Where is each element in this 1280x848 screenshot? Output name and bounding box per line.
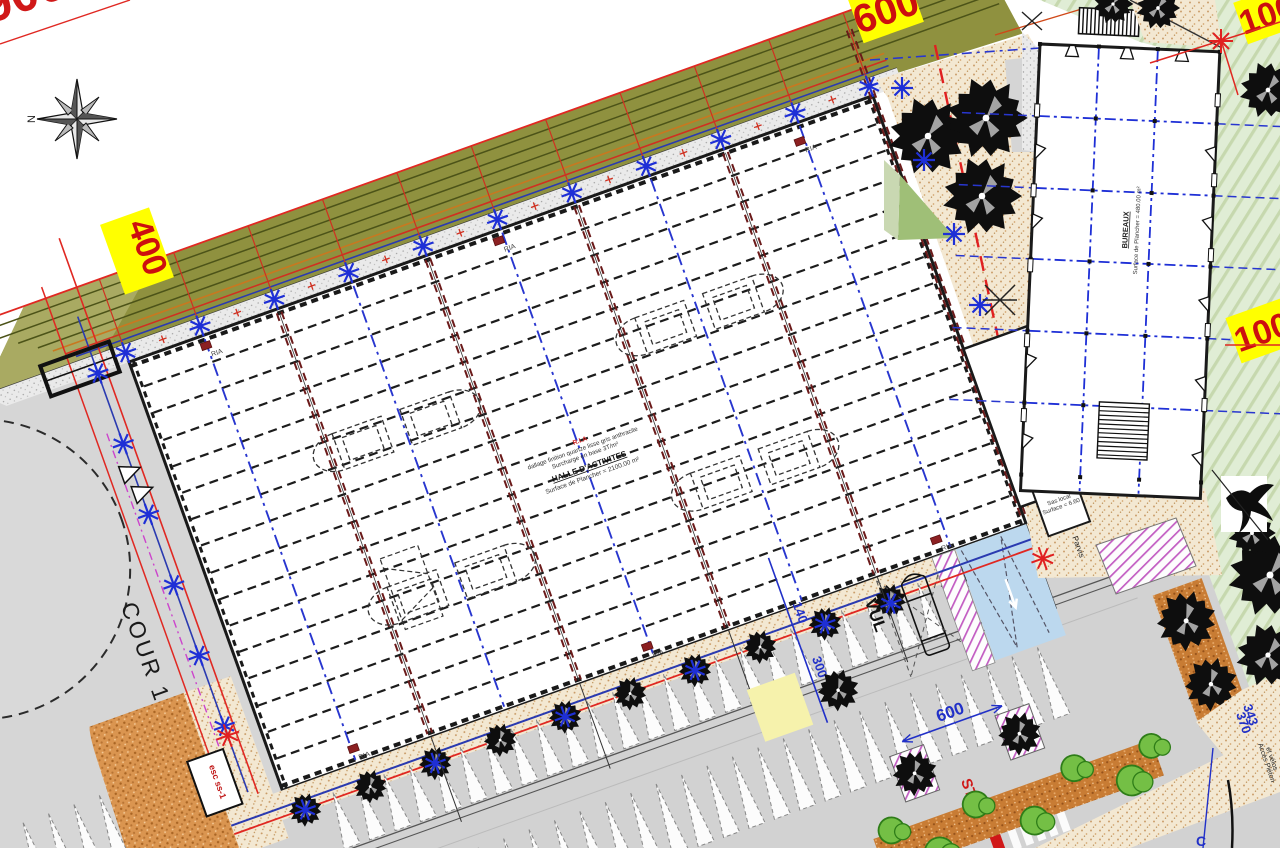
svg-text:C: C <box>1196 833 1206 848</box>
svg-text:N: N <box>26 115 38 123</box>
svg-text:BUREAUX: BUREAUX <box>1120 211 1131 248</box>
